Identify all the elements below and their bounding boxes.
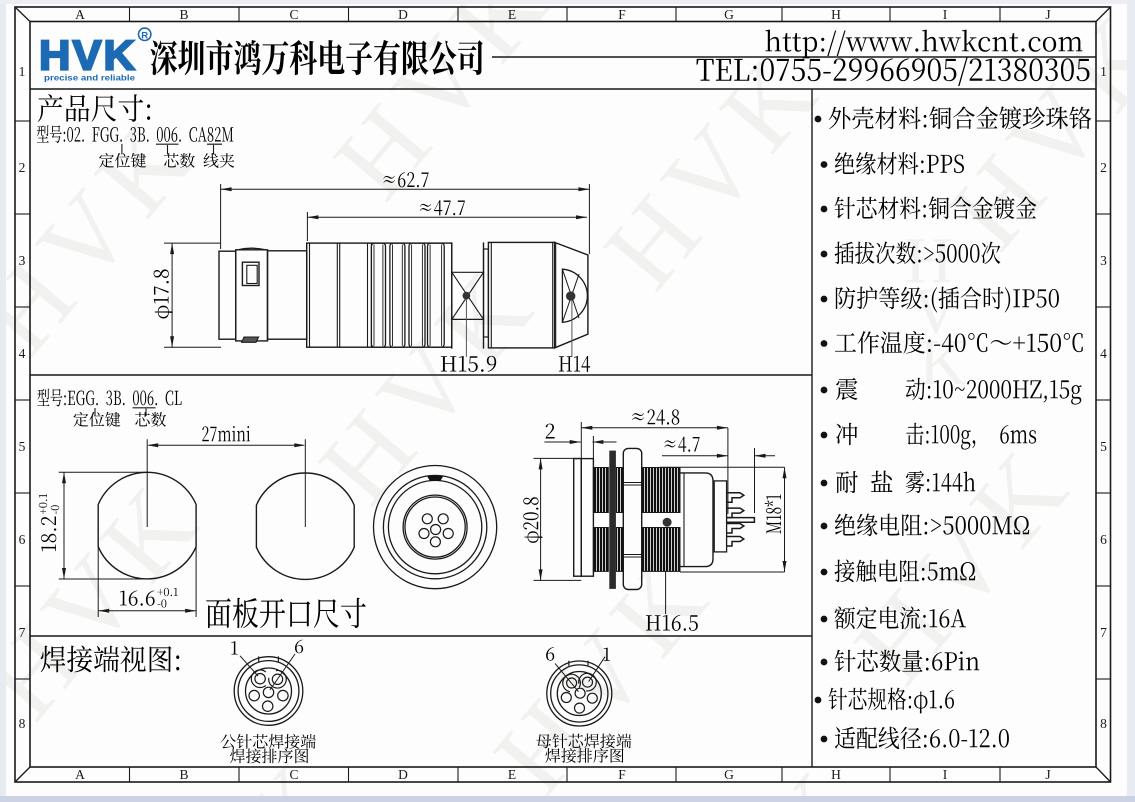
- svg-text:4: 4: [1100, 346, 1107, 361]
- svg-text:8: 8: [19, 716, 26, 731]
- svg-text:7: 7: [19, 625, 26, 640]
- svg-text:3: 3: [1100, 253, 1107, 268]
- svg-text:E: E: [508, 7, 516, 22]
- svg-text:H: H: [831, 7, 841, 22]
- svg-text:6: 6: [19, 532, 26, 547]
- svg-text:1: 1: [19, 64, 26, 79]
- svg-text:I: I: [943, 7, 948, 22]
- svg-text:8: 8: [1100, 716, 1107, 731]
- svg-text:D: D: [398, 767, 408, 782]
- svg-text:F: F: [618, 767, 626, 782]
- svg-text:E: E: [508, 767, 516, 782]
- svg-text:B: B: [179, 767, 188, 782]
- svg-text:5: 5: [19, 439, 26, 454]
- svg-text:G: G: [724, 7, 734, 22]
- svg-text:7: 7: [1100, 625, 1107, 640]
- svg-text:5: 5: [1100, 439, 1107, 454]
- svg-text:3: 3: [19, 253, 26, 268]
- svg-text:2: 2: [1100, 160, 1107, 175]
- svg-text:R: R: [141, 31, 148, 42]
- svg-text:H: H: [831, 767, 841, 782]
- svg-text:J: J: [1045, 7, 1050, 22]
- svg-text:C: C: [289, 767, 298, 782]
- svg-text:C: C: [289, 7, 298, 22]
- svg-text:1: 1: [1100, 64, 1107, 79]
- svg-text:2: 2: [19, 160, 26, 175]
- svg-text:I: I: [943, 767, 948, 782]
- svg-text:J: J: [1045, 767, 1050, 782]
- svg-text:D: D: [398, 7, 408, 22]
- svg-text:F: F: [618, 7, 626, 22]
- svg-text:6: 6: [1100, 532, 1107, 547]
- svg-text:B: B: [179, 7, 188, 22]
- svg-text:G: G: [724, 767, 734, 782]
- svg-text:precise and reliable: precise and reliable: [44, 74, 136, 83]
- svg-text:4: 4: [19, 346, 26, 361]
- svg-text:HVK: HVK: [39, 32, 137, 79]
- svg-text:A: A: [75, 7, 85, 22]
- svg-text:A: A: [75, 767, 85, 782]
